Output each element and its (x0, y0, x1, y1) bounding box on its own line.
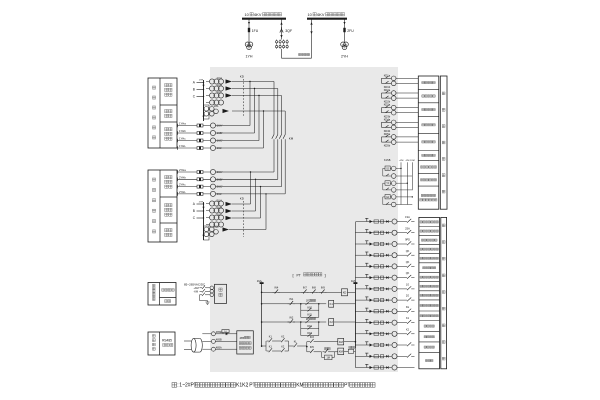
svg-text:2UB: 2UB (217, 205, 223, 209)
svg-text:2YH: 2YH (199, 201, 204, 203)
svg-text:2YHb: 2YHb (179, 175, 186, 179)
svg-text:2UC: 2UC (217, 212, 223, 216)
svg-text:2YHa: 2YHa (179, 168, 186, 172)
svg-text:2UA: 2UA (217, 198, 223, 202)
svg-text:1YHc: 1YHc (179, 137, 186, 141)
svg-text:1G: 1G (406, 284, 409, 287)
svg-text:2UL: 2UL (214, 225, 220, 229)
svg-text:IN1: IN1 (289, 298, 294, 301)
svg-text:6KV: 6KV (317, 13, 325, 17)
svg-text:-XM: -XM (405, 160, 409, 162)
svg-text:1XM: 1XM (410, 160, 415, 162)
svg-text:IN8: IN8 (312, 287, 317, 290)
svg-text:QK: QK (406, 250, 410, 253)
svg-text:B: B (193, 88, 195, 92)
svg-text:]: ] (325, 272, 326, 277)
svg-text:2YHc: 2YHc (179, 183, 186, 187)
svg-text:2YH: 2YH (341, 55, 348, 59)
svg-text:1YHL: 1YHL (179, 144, 186, 148)
svg-text:1YHa: 1YHa (179, 122, 186, 126)
svg-text:6KV: 6KV (254, 13, 262, 17)
svg-text:K1SB: K1SB (384, 159, 391, 162)
svg-text:1UB: 1UB (217, 83, 223, 87)
svg-text:,: , (247, 383, 248, 389)
svg-text:-KM: -KM (194, 290, 199, 293)
svg-text:B: B (193, 209, 195, 213)
svg-text:10: 10 (245, 13, 249, 17)
svg-text:K1: K1 (330, 302, 334, 306)
svg-text:PT: PT (344, 383, 350, 389)
svg-text:IN9: IN9 (321, 287, 326, 290)
svg-text:3G: 3G (406, 306, 409, 309)
svg-text:PT: PT (297, 273, 301, 277)
svg-text:PT: PT (249, 383, 255, 389)
svg-text:RS485: RS485 (162, 339, 172, 343)
svg-text:KM: KM (339, 340, 343, 344)
svg-text:485: 485 (239, 336, 244, 340)
svg-text:KM: KM (339, 350, 343, 354)
svg-text:1FU: 1FU (252, 29, 259, 33)
svg-text:1YH: 1YH (246, 55, 253, 59)
svg-text:+XM: +XM (399, 160, 404, 162)
svg-text:IN2: IN2 (289, 316, 294, 319)
svg-text:KM: KM (289, 136, 294, 140)
svg-text:9PD: 9PD (405, 239, 410, 242)
svg-text:IN3: IN3 (310, 336, 315, 339)
svg-text:2FU: 2FU (347, 29, 354, 33)
svg-text:1YH: 1YH (199, 79, 204, 81)
svg-text:1UC: 1UC (217, 90, 223, 94)
svg-text:1~2#PT: 1~2#PT (179, 383, 197, 389)
svg-text:3QF: 3QF (285, 29, 293, 33)
svg-text:IN4: IN4 (274, 287, 279, 290)
svg-text:485A: 485A (216, 346, 222, 349)
svg-text:1YHb: 1YHb (179, 129, 186, 133)
svg-text:1M+: 1M+ (257, 279, 263, 283)
svg-text:IN5: IN5 (310, 346, 315, 349)
svg-text:2YHL: 2YHL (179, 190, 186, 194)
svg-text:2SA: 2SA (405, 227, 410, 230)
svg-text:K2: K2 (330, 320, 334, 324)
svg-text:1UA: 1UA (217, 76, 223, 80)
svg-text:1M: 1M (327, 357, 330, 360)
svg-text:2G: 2G (406, 295, 409, 298)
svg-text:KD: KD (343, 291, 347, 295)
svg-text:1UL: 1UL (214, 104, 220, 108)
svg-text:KM: KM (296, 383, 304, 389)
svg-text:1M-: 1M- (351, 279, 356, 283)
svg-text:10: 10 (308, 13, 312, 17)
svg-text:QK: QK (406, 261, 410, 264)
svg-text:IN7: IN7 (303, 287, 308, 290)
svg-text:QK: QK (406, 272, 410, 275)
svg-text:1SA: 1SA (405, 216, 410, 219)
svg-text:KD5b: KD5b (384, 144, 391, 148)
